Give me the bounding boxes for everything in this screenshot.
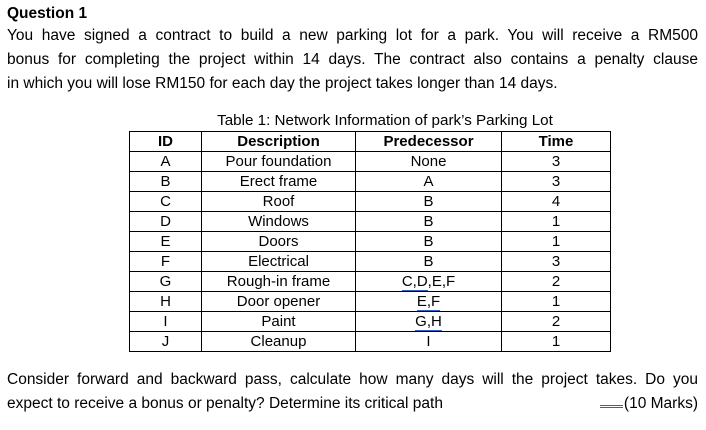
header-time: Time	[502, 132, 611, 152]
table-row: JCleanupI1	[130, 332, 611, 352]
cell-description: Rough-in frame	[202, 272, 356, 292]
predecessor-text: A	[423, 173, 433, 190]
table-row: FElectricalB3	[130, 252, 611, 272]
cell-predecessor: None	[356, 152, 502, 172]
cell-predecessor: B	[356, 192, 502, 212]
table-row: BErect frameA3	[130, 172, 611, 192]
cell-time: 4	[502, 192, 611, 212]
cell-id: C	[130, 192, 202, 212]
cell-description: Pour foundation	[202, 152, 356, 172]
cell-id: J	[130, 332, 202, 352]
grammar-underline-blank	[600, 392, 623, 408]
cell-time: 3	[502, 172, 611, 192]
header-predecessor: Predecessor	[356, 132, 502, 152]
header-id: ID	[130, 132, 202, 152]
cell-id: F	[130, 252, 202, 272]
cell-description: Electrical	[202, 252, 356, 272]
table-caption: Table 1: Network Information of park’s P…	[152, 111, 618, 131]
table-row: CRoofB4	[130, 192, 611, 212]
predecessor-text: B	[423, 213, 433, 230]
cell-time: 3	[502, 152, 611, 172]
table-row: DWindowsB1	[130, 212, 611, 232]
cell-description: Windows	[202, 212, 356, 232]
predecessor-text: ,E,F	[428, 273, 456, 290]
outro-line-2-text: expect to receive a bonus or penalty? De…	[7, 392, 443, 416]
intro-line-3: in which you will lose RM150 for each da…	[7, 72, 698, 96]
table-row: IPaintG,H2	[130, 312, 611, 332]
document-page: Question 1 You have signed a contract to…	[0, 0, 706, 430]
cell-description: Door opener	[202, 292, 356, 312]
marks-text: (10 Marks)	[624, 395, 698, 412]
cell-time: 2	[502, 272, 611, 292]
outro-paragraph: Consider forward and backward pass, calc…	[7, 368, 698, 416]
cell-id: D	[130, 212, 202, 232]
cell-id: E	[130, 232, 202, 252]
table-row: GRough-in frameC,D,E,F2	[130, 272, 611, 292]
grammar-underlined-text: C,D	[402, 273, 428, 292]
cell-id: I	[130, 312, 202, 332]
cell-predecessor: G,H	[356, 312, 502, 332]
cell-predecessor: B	[356, 212, 502, 232]
marks-label: (10 Marks)	[600, 392, 698, 416]
header-description: Description	[202, 132, 356, 152]
table-row: APour foundationNone3	[130, 152, 611, 172]
cell-predecessor: A	[356, 172, 502, 192]
cell-description: Doors	[202, 232, 356, 252]
cell-time: 3	[502, 252, 611, 272]
predecessor-text: I	[426, 333, 430, 350]
cell-description: Roof	[202, 192, 356, 212]
cell-time: 2	[502, 312, 611, 332]
cell-id: G	[130, 272, 202, 292]
cell-description: Erect frame	[202, 172, 356, 192]
intro-line-1: You have signed a contract to build a ne…	[7, 24, 698, 48]
intro-paragraph: You have signed a contract to build a ne…	[7, 24, 698, 96]
table-row: HDoor openerE,F1	[130, 292, 611, 312]
cell-predecessor: B	[356, 252, 502, 272]
cell-id: A	[130, 152, 202, 172]
cell-id: H	[130, 292, 202, 312]
cell-time: 1	[502, 332, 611, 352]
cell-predecessor: C,D,E,F	[356, 272, 502, 292]
predecessor-text: B	[423, 233, 433, 250]
predecessor-text: B	[423, 193, 433, 210]
predecessor-text: None	[411, 153, 447, 170]
cell-description: Paint	[202, 312, 356, 332]
cell-predecessor: I	[356, 332, 502, 352]
question-heading: Question 1	[7, 2, 87, 26]
cell-id: B	[130, 172, 202, 192]
cell-time: 1	[502, 232, 611, 252]
cell-time: 1	[502, 292, 611, 312]
table-header-row: ID Description Predecessor Time	[130, 132, 611, 152]
cell-predecessor: B	[356, 232, 502, 252]
intro-line-2: bonus for completing the project within …	[7, 48, 698, 72]
cell-predecessor: E,F	[356, 292, 502, 312]
outro-line-1: Consider forward and backward pass, calc…	[7, 368, 698, 392]
grammar-underlined-text: G,H	[415, 313, 442, 332]
cell-time: 1	[502, 212, 611, 232]
network-information-table: ID Description Predecessor Time APour fo…	[129, 131, 611, 352]
table-row: EDoorsB1	[130, 232, 611, 252]
predecessor-text: B	[423, 253, 433, 270]
cell-description: Cleanup	[202, 332, 356, 352]
grammar-underlined-text: E,F	[417, 293, 440, 312]
outro-line-2: expect to receive a bonus or penalty? De…	[7, 392, 698, 416]
network-table-body: APour foundationNone3BErect frameA3CRoof…	[130, 152, 611, 352]
